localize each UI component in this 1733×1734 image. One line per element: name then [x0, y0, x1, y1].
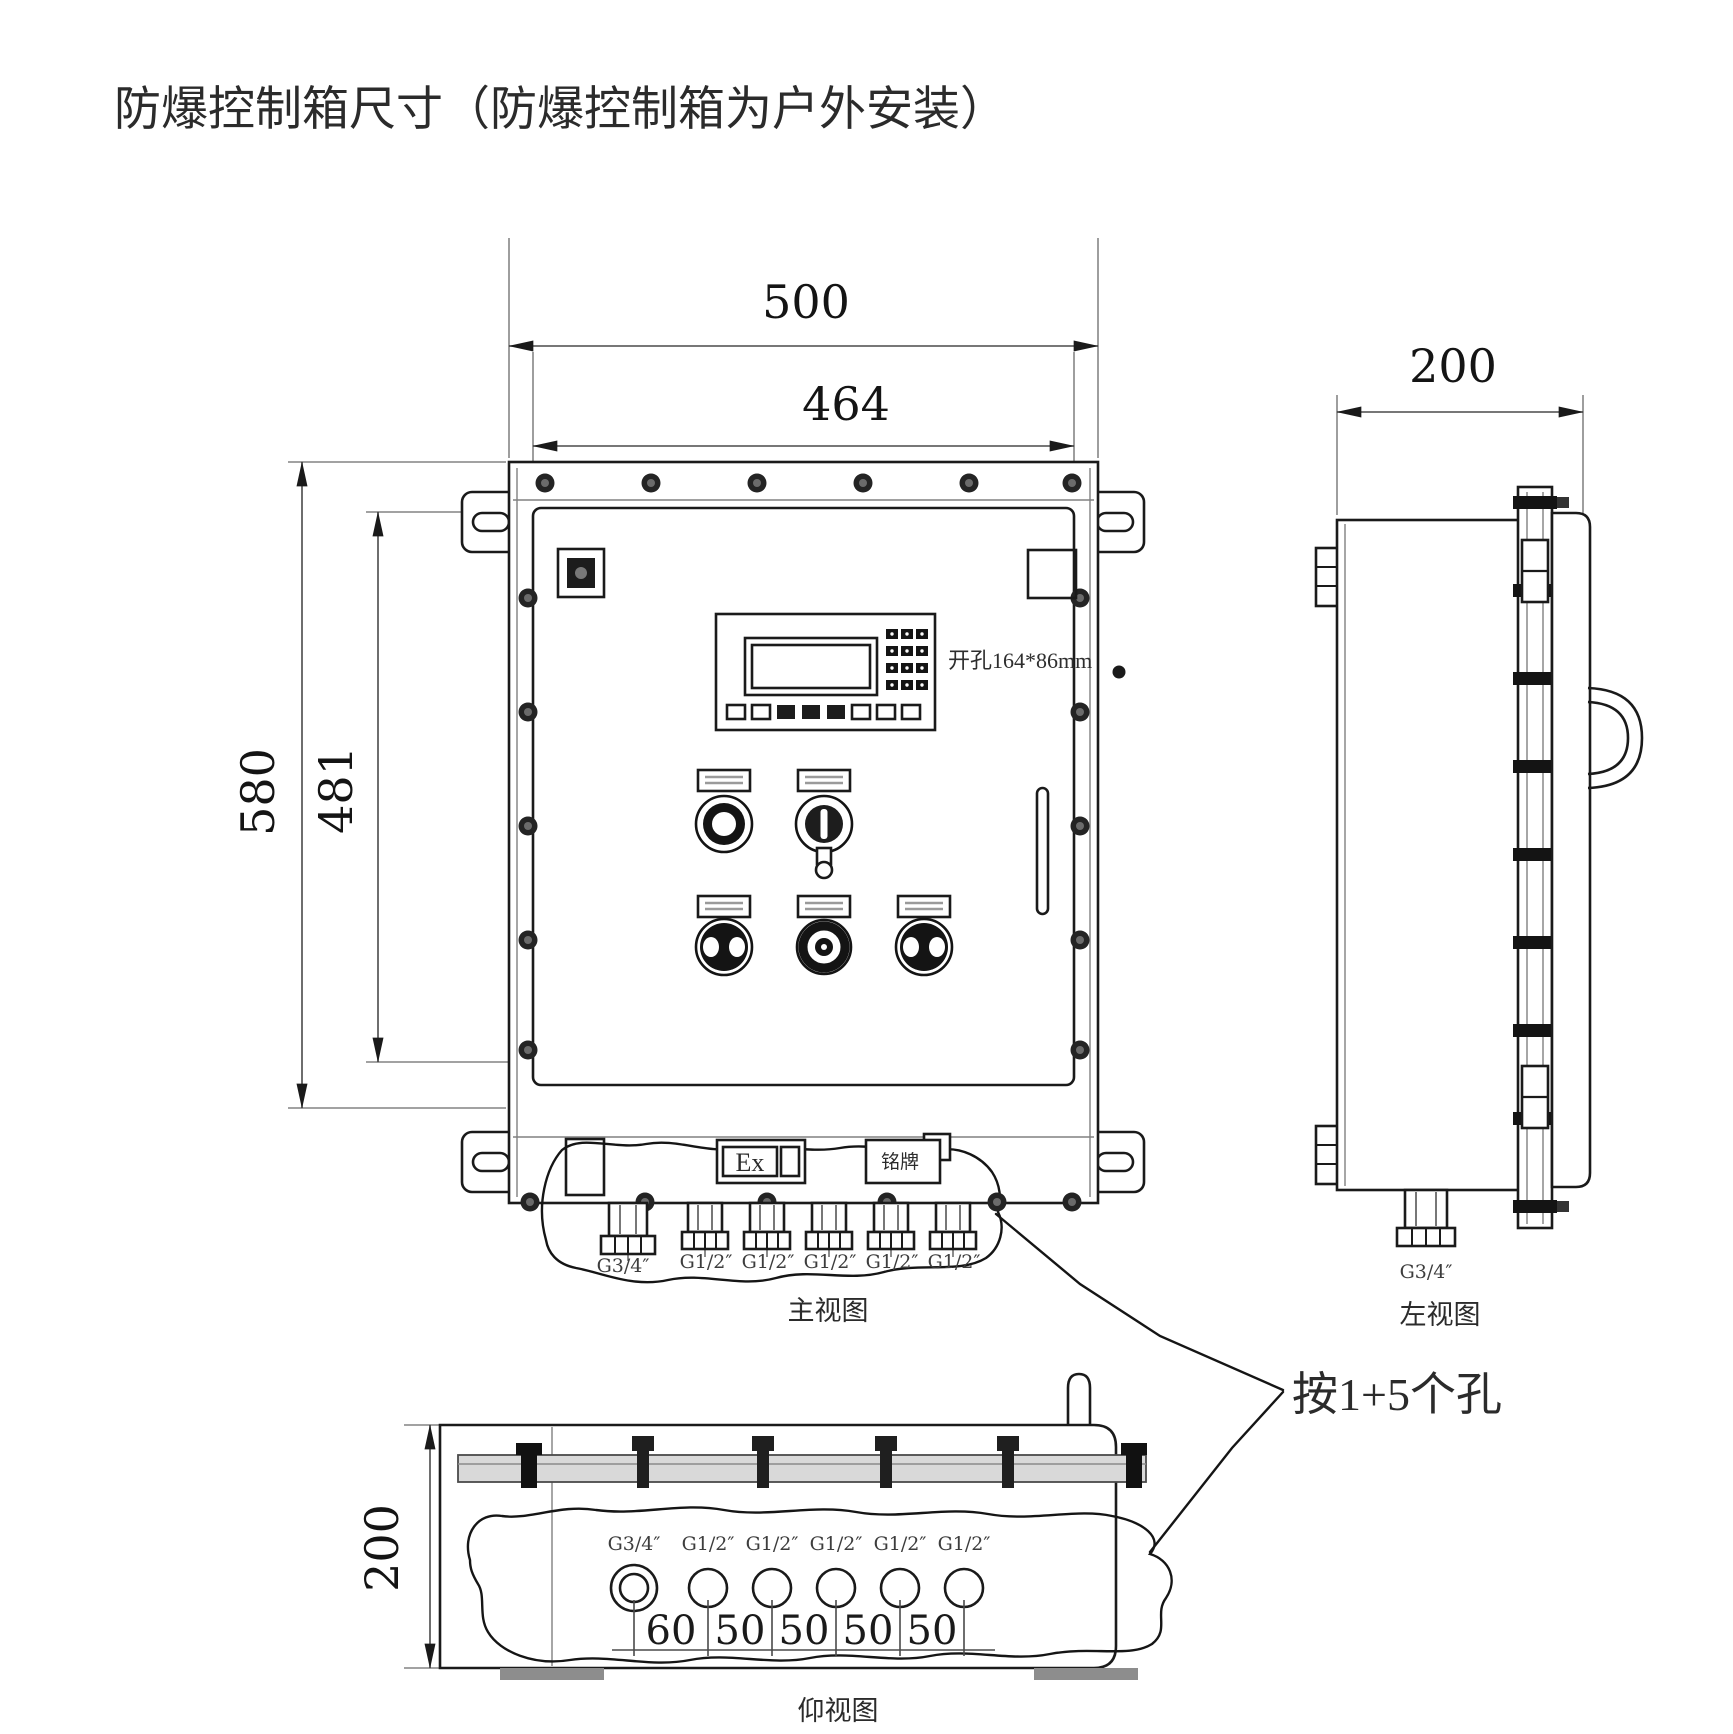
- dim-200-side-text: 200: [1409, 339, 1497, 393]
- engineering-drawing-canvas: 防爆控制箱尺寸（防爆控制箱为户外安装） 500 464 580: [0, 0, 1733, 1734]
- bottom-gland-label-3: G1/2″: [810, 1533, 863, 1555]
- spacing-50-4: 50: [907, 1608, 958, 1654]
- drawing-page: 防爆控制箱尺寸（防爆控制箱为户外安装） 500 464 580: [0, 0, 1733, 1734]
- nameplate-text: 铭牌: [881, 1151, 919, 1173]
- leader-from-front-cloud: [996, 1214, 1283, 1390]
- side-body: [1337, 520, 1520, 1190]
- dim-481-text: 481: [309, 746, 363, 834]
- front-view: 500 464 580 481: [231, 238, 1144, 1326]
- hmi-screen: [745, 638, 877, 695]
- selector-switch-right: [896, 896, 952, 975]
- ex-mark-text: Ex: [736, 1148, 765, 1177]
- pushbutton-control: [696, 770, 752, 852]
- hole-spacing-chain: 60 50 50 50 50: [612, 1600, 995, 1656]
- ex-marking-plate: Ex: [717, 1140, 805, 1183]
- bottom-handle-pipe: [1068, 1374, 1090, 1425]
- side-gland-label: G3/4″: [1400, 1261, 1453, 1283]
- cutout-note: 开孔164*86mm: [948, 648, 1092, 673]
- side-gland: [1397, 1190, 1455, 1246]
- leader-from-bottom-cloud: [1150, 1392, 1283, 1552]
- front-gland-label-3: G1/2″: [804, 1251, 857, 1273]
- indicator-lamp: [797, 896, 851, 974]
- gland-g34: [601, 1203, 655, 1261]
- bottom-gland-label-0: G3/4″: [608, 1533, 661, 1555]
- bottom-view-label: 仰视图: [798, 1696, 879, 1726]
- front-gland-label-2: G1/2″: [742, 1251, 795, 1273]
- side-handle: [1588, 688, 1642, 788]
- side-view: 200: [1316, 339, 1642, 1330]
- front-dim-inner-height: 481: [309, 512, 530, 1062]
- front-gland-label-5: G1/2″: [928, 1251, 981, 1273]
- front-gland-label-4: G1/2″: [866, 1251, 919, 1273]
- selector-switch-left: [696, 896, 752, 975]
- dim-500-text: 500: [762, 275, 850, 329]
- foot-right: [1034, 1668, 1138, 1680]
- bottom-gland-label-2: G1/2″: [746, 1533, 799, 1555]
- door-lock: [558, 549, 604, 597]
- page-title: 防爆控制箱尺寸（防爆控制箱为户外安装）: [114, 84, 1007, 136]
- bottom-view: 200 G3/4″ G1/2″: [355, 1374, 1172, 1726]
- nameplate: 铭牌: [866, 1134, 950, 1183]
- gland-g12-3: [806, 1203, 852, 1257]
- gland-g12-5: [930, 1203, 976, 1257]
- front-gland-label-1: G1/2″: [680, 1251, 733, 1273]
- spacing-50-1: 50: [715, 1608, 766, 1654]
- holes-note-text: 按1+5个孔: [1292, 1369, 1502, 1420]
- spacing-50-2: 50: [779, 1608, 830, 1654]
- foot-left: [500, 1668, 604, 1680]
- bottom-gland-label-5: G1/2″: [938, 1533, 991, 1555]
- gland-g12-1: [682, 1203, 728, 1257]
- hmi-panel: [716, 614, 935, 730]
- front-view-label: 主视图: [788, 1296, 869, 1326]
- dim-580-text: 580: [231, 748, 285, 836]
- bottom-gland-label-1: G1/2″: [682, 1533, 735, 1555]
- dim-464-text: 464: [802, 377, 890, 431]
- bottom-gland-label-4: G1/2″: [874, 1533, 927, 1555]
- cutout-leader-dot: [1113, 666, 1126, 679]
- dim-200-bottom-text: 200: [355, 1504, 409, 1592]
- front-dim-outer-height: 580: [231, 462, 506, 1108]
- front-gland-label-0: G3/4″: [597, 1255, 650, 1277]
- side-door-face: [1552, 513, 1590, 1187]
- spacing-60: 60: [646, 1608, 697, 1654]
- door-outline: [533, 508, 1074, 1085]
- side-view-label: 左视图: [1400, 1300, 1481, 1330]
- gland-g12-2: [744, 1203, 790, 1257]
- spacing-50-3: 50: [843, 1608, 894, 1654]
- bottom-dim-depth: 200: [355, 1425, 446, 1668]
- gland-g12-4: [868, 1203, 914, 1257]
